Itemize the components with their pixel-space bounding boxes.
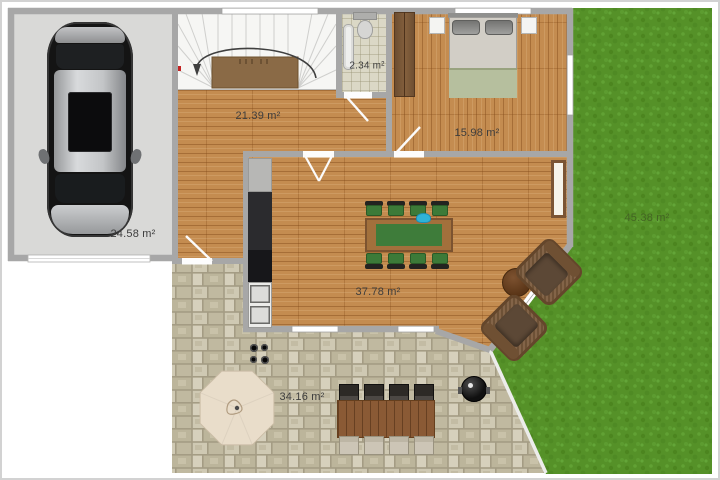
grill-handle (458, 387, 462, 394)
burner-icon (250, 356, 257, 363)
toilet-icon (352, 12, 378, 40)
outdoor-chair-light (339, 436, 359, 455)
dining-table (365, 218, 453, 252)
bedroom-area-label: 15.98 m² (454, 127, 499, 139)
pillow-icon (452, 20, 480, 35)
dining-chair (365, 253, 383, 269)
bathroom-area-label: 2.34 m² (349, 61, 384, 72)
garden-area-label: 45.38 m² (624, 212, 669, 224)
car-windshield (55, 174, 125, 203)
dining-chair (387, 253, 405, 269)
kitchen-counter (248, 158, 272, 328)
kitchen-counter-top (248, 158, 272, 192)
table-runner (376, 224, 442, 246)
pillow-icon (485, 20, 513, 35)
outdoor-dining-set (337, 384, 435, 456)
nightstand-icon (429, 17, 445, 34)
car-top-view (47, 22, 133, 237)
oven-stack (248, 282, 272, 328)
door-gap-hall-living (303, 151, 334, 158)
window-living-south-2 (398, 326, 434, 332)
patio-area-label: 34.16 m² (279, 391, 324, 403)
outdoor-chair-light (414, 436, 434, 455)
dining-chair (387, 201, 405, 217)
wardrobe-icon (394, 12, 415, 97)
oven-icon (250, 285, 270, 303)
burner-icon (250, 344, 258, 352)
window-stairs-north (222, 8, 318, 14)
double-bed (448, 13, 518, 98)
window-bedroom-east (567, 55, 573, 115)
bed-blanket (449, 68, 517, 98)
burner-icon (261, 356, 269, 364)
grill-icon (461, 376, 487, 402)
oven-drawer-icon (250, 306, 270, 324)
grill-lid-knob (468, 383, 473, 388)
dining-chair (409, 253, 427, 269)
burner-icon (261, 344, 268, 351)
outdoor-chair-light (389, 436, 409, 455)
dining-chair (365, 201, 383, 217)
floor-plan: 24.58 m² 21.39 m² 2.34 m² 15.98 m² 37.78… (0, 0, 720, 480)
toilet-tank (353, 12, 377, 20)
cooktop-icon (248, 250, 272, 282)
toilet-bowl (357, 20, 373, 39)
garage-area-label: 24.58 m² (110, 228, 155, 240)
car-sunroof (68, 92, 112, 152)
outdoor-table (337, 400, 435, 438)
dining-chair (431, 201, 449, 217)
tall-window-east (551, 160, 566, 218)
window-living-south-1 (292, 326, 338, 332)
parasol-icon (200, 371, 274, 445)
car-rear-deck (55, 27, 125, 43)
grill-handle (486, 387, 490, 394)
living-room-area-label: 37.78 m² (355, 286, 400, 298)
dining-set (363, 201, 455, 269)
door-gap-hall-patio (182, 258, 212, 265)
garage-door (28, 255, 150, 262)
car-rear-window (56, 44, 124, 69)
kitchen-counter-dark (248, 192, 272, 250)
outdoor-chair-light (364, 436, 384, 455)
stair-landing (212, 57, 298, 88)
dining-chair (431, 253, 449, 269)
hallway-area-label: 21.39 m² (235, 110, 280, 122)
nightstand-icon (521, 17, 537, 34)
kettle-icon (416, 213, 431, 223)
